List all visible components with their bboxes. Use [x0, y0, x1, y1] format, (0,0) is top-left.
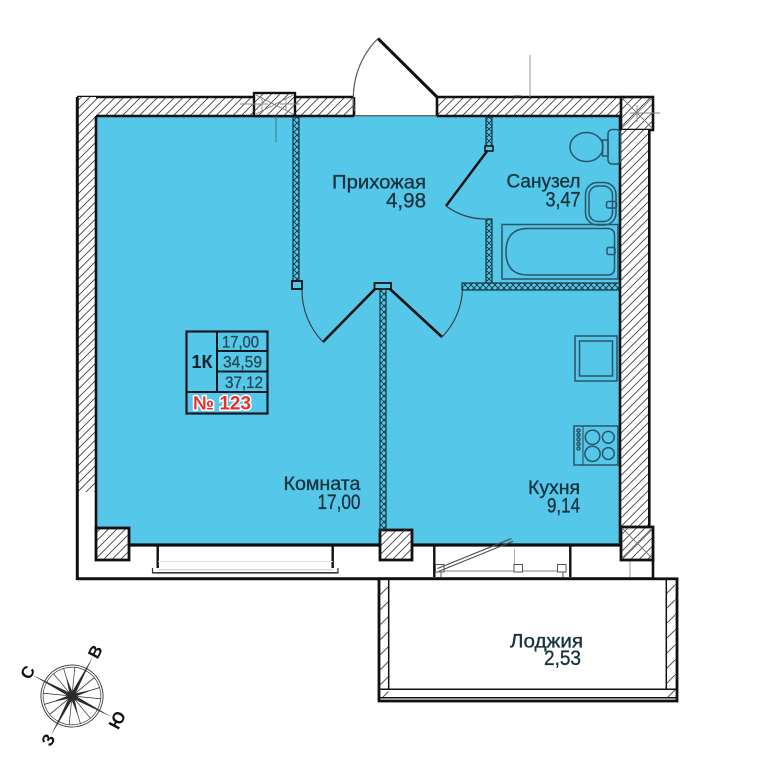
svg-text:№ 123: № 123: [193, 394, 251, 415]
svg-text:3,47: 3,47: [546, 189, 581, 212]
svg-text:4,98: 4,98: [386, 190, 426, 213]
svg-text:17,00: 17,00: [318, 491, 361, 514]
svg-text:34,59: 34,59: [223, 353, 262, 372]
svg-text:37,12: 37,12: [225, 373, 263, 392]
svg-text:Ю: Ю: [105, 708, 130, 732]
svg-text:С: С: [17, 663, 40, 683]
svg-text:17,00: 17,00: [222, 333, 259, 352]
svg-text:1К: 1К: [192, 352, 214, 372]
svg-text:2,53: 2,53: [544, 647, 581, 670]
svg-text:В: В: [84, 642, 107, 662]
svg-text:З: З: [38, 731, 60, 749]
svg-text:9,14: 9,14: [547, 495, 580, 518]
